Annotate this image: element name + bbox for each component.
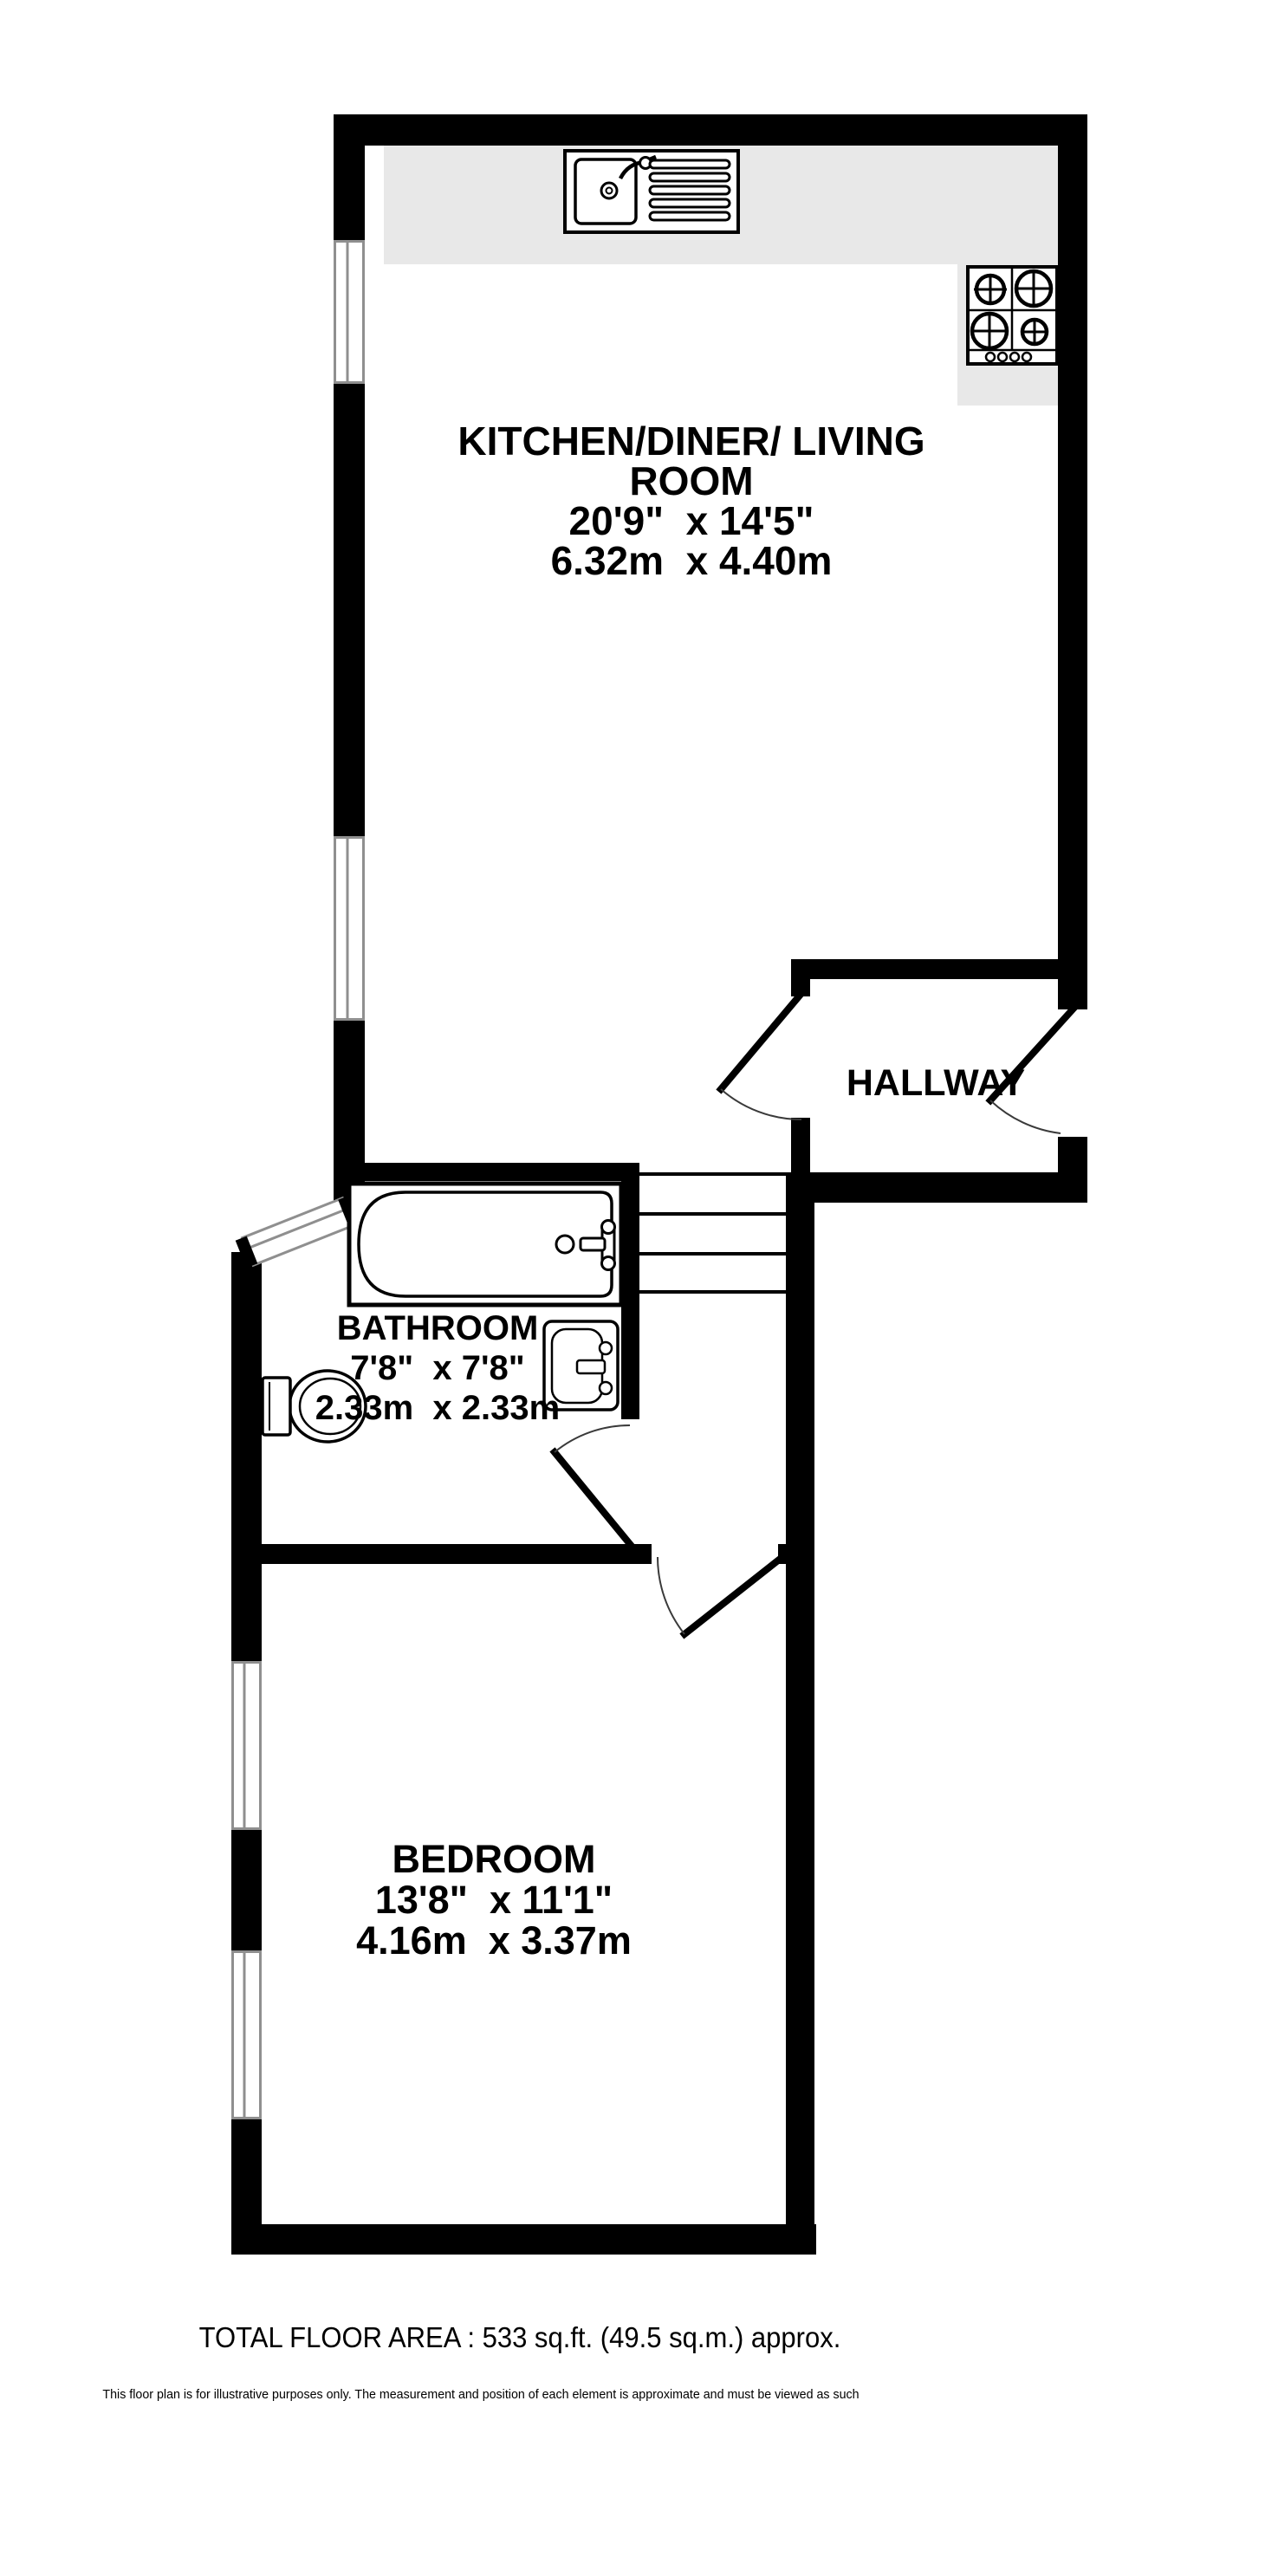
wall-hallway-bottom [814,1172,1087,1203]
kitchen-name-line1: KITCHEN/DINER/ LIVING [414,421,969,461]
window-bedroom-upper-icon [231,1661,262,1830]
wall-bathroom-right [621,1163,639,1419]
bathroom-dims-imperial: 7'8" x 7'8" [256,1348,620,1388]
bedroom-dims-metric: 4.16m x 3.37m [286,1920,702,1961]
bedroom-name: BEDROOM [286,1839,702,1879]
total-floor-area-text: TOTAL FLOOR AREA : 533 sq.ft. (49.5 sq.m… [153,2322,886,2353]
bedroom-label: BEDROOM 13'8" x 11'1" 4.16m x 3.37m [286,1839,702,1961]
wall-right-lower [786,1172,814,2255]
disclaimer-text: This floor plan is for illustrative purp… [69,2387,892,2403]
kitchen-dims-metric: 6.32m x 4.40m [414,541,969,581]
floor-plan-page: KITCHEN/DINER/ LIVING ROOM 20'9" x 14'5"… [0,0,1265,2576]
window-kitchen-lower-icon [334,836,365,1021]
steps-icon [639,1174,786,1292]
hallway-label: HALLWAY [803,1064,1068,1102]
window-bedroom-lower-icon [231,1950,262,2119]
kitchen-door-post-top [791,959,810,996]
window-bathroom-corner-icon [241,1197,354,1266]
kitchen-dims-imperial: 20'9" x 14'5" [414,501,969,541]
bathroom-label: BATHROOM 7'8" x 7'8" 2.33m x 2.33m [256,1308,620,1428]
bathroom-name: BATHROOM [256,1308,620,1348]
hob-icon [968,267,1057,364]
kitchen-sink-icon [565,151,738,232]
wall-bottom [231,2224,816,2255]
wall-hallway-top [791,959,1058,979]
window-kitchen-upper-icon [334,240,365,384]
wall-top [334,114,1087,146]
kitchen-name-line2: ROOM [414,461,969,501]
bedroom-door-icon [658,1557,782,1634]
kitchen-label: KITCHEN/DINER/ LIVING ROOM 20'9" x 14'5"… [414,421,969,581]
wall-bedroom-top [231,1544,652,1564]
floor-plan-drawing [0,0,1265,2576]
kitchen-door-icon [721,996,801,1119]
wall-bathroom-top [334,1163,639,1181]
bathroom-door-icon [555,1425,630,1544]
wall-right-upper [1058,114,1087,1009]
bedroom-dims-imperial: 13'8" x 11'1" [286,1879,702,1920]
bathroom-dims-metric: 2.33m x 2.33m [256,1388,620,1428]
hallway-name: HALLWAY [803,1064,1068,1102]
bathtub-icon [349,1184,621,1305]
